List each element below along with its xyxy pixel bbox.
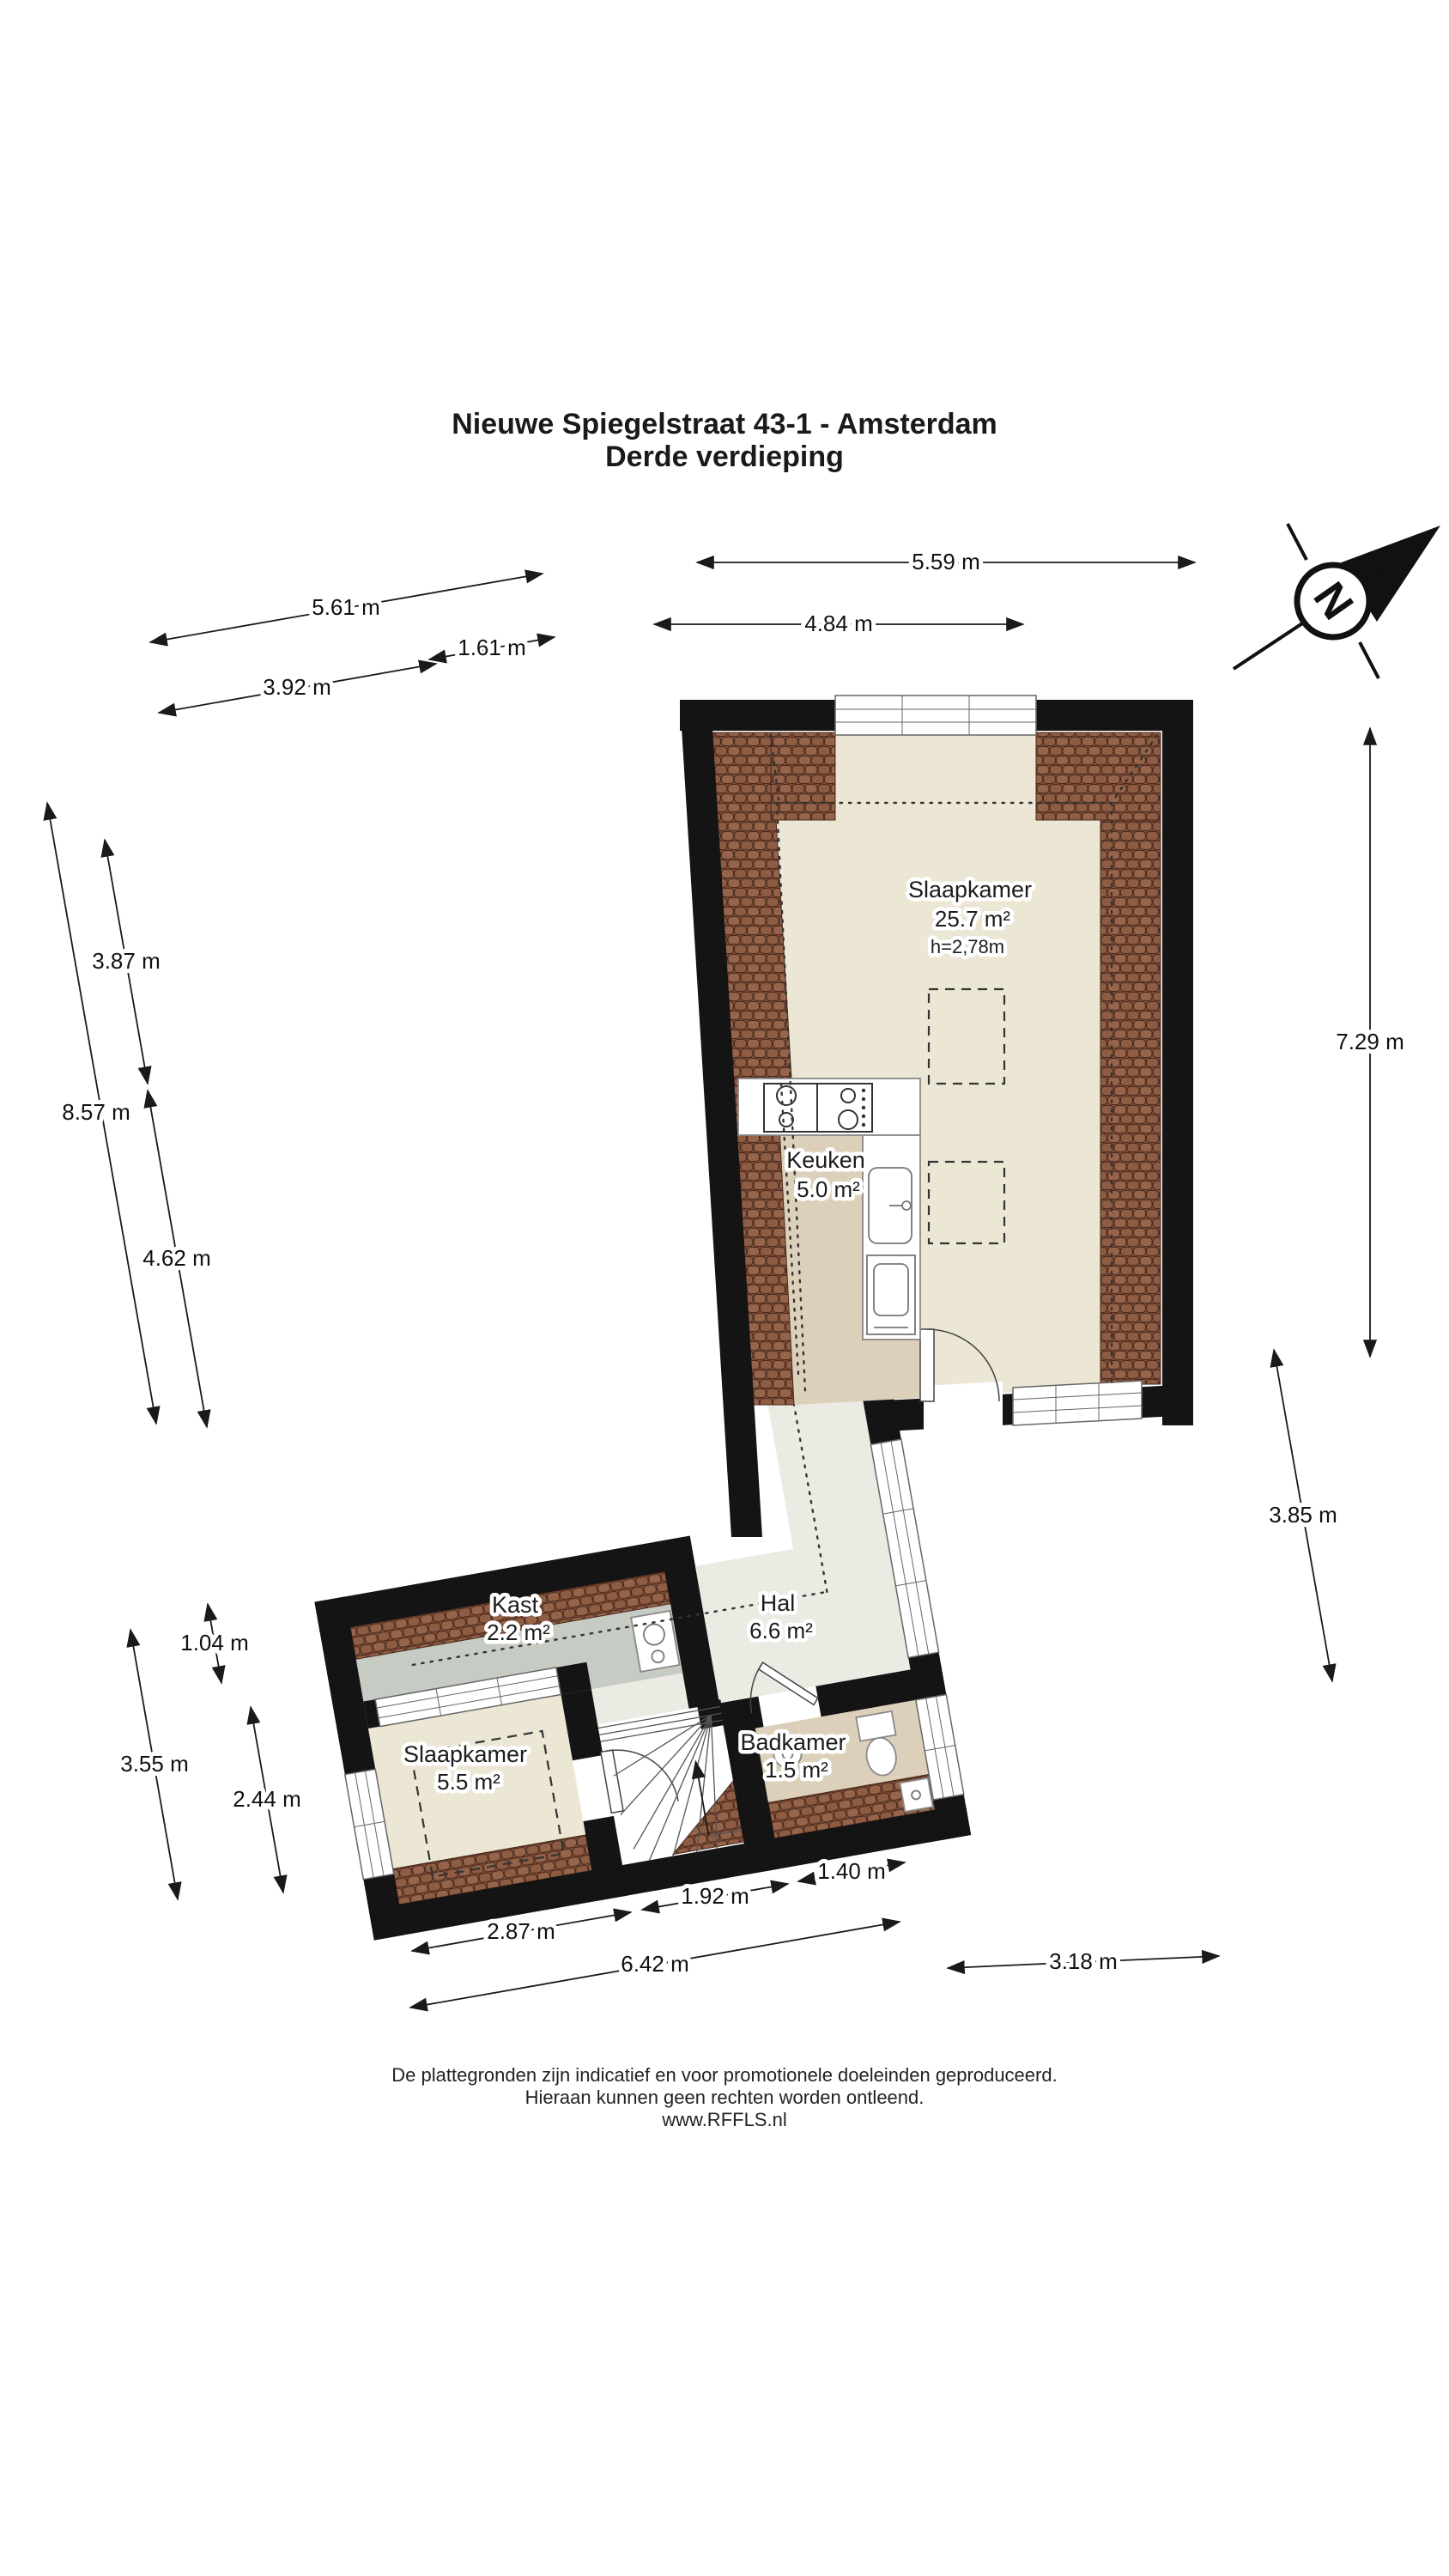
svg-text:3.92 m: 3.92 m [263,674,331,700]
dim-7-29: 7.29 m [1336,728,1404,1357]
dim-1-04: 1.04 m [180,1604,249,1683]
svg-text:5.59 m: 5.59 m [912,549,980,574]
dim-3-85: 3.85 m [1269,1350,1337,1681]
label-kast-area: 2.2 m² [487,1619,550,1645]
svg-text:1.40 m: 1.40 m [817,1858,886,1884]
dim-8-57: 8.57 m [47,803,156,1424]
svg-text:5.61 m: 5.61 m [312,594,380,620]
svg-text:4.62 m: 4.62 m [142,1245,211,1271]
svg-text:3.85 m: 3.85 m [1269,1502,1337,1528]
svg-text:1.92 m: 1.92 m [681,1883,749,1909]
washbasin [900,1778,932,1812]
dim-1-61: 1.61 m [429,635,555,660]
label-keuken: Keuken [786,1147,865,1173]
compass-north-icon: N [1234,524,1440,678]
kitchen-sink-unit [863,1135,920,1340]
dim-3-18: 3.18 m [948,1948,1219,1974]
floorplan-svg: Nieuwe Spiegelstraat 43-1 - Amsterdam De… [0,0,1449,2576]
dim-6-42: 6.42 m [410,1922,900,2008]
disclaimer-footer: De plattegronden zijn indicatief en voor… [391,2064,1057,2130]
floorplan-page: Nieuwe Spiegelstraat 43-1 - Amsterdam De… [0,0,1449,2576]
label-hal: Hal [761,1590,796,1616]
label-slaapkamer-groot-area: 25.7 m² [935,906,1010,932]
svg-text:3.18 m: 3.18 m [1049,1948,1118,1974]
slaapkamer-groot-top-window [835,696,1036,735]
slaapkamer-groot-bottom-window [1013,1381,1142,1425]
label-slaapkamer-groot-height: h=2,78m [931,936,1004,957]
upper-section [680,696,1193,1537]
dim-4-62: 4.62 m [142,1091,211,1427]
svg-text:3.87 m: 3.87 m [92,948,161,974]
dim-5-59: 5.59 m [697,549,1195,574]
svg-text:3.55 m: 3.55 m [120,1751,189,1777]
svg-text:1.61 m: 1.61 m [458,635,526,660]
svg-text:1.04 m: 1.04 m [180,1630,249,1656]
label-keuken-area: 5.0 m² [797,1176,860,1202]
label-slaapkamer-klein-area: 5.5 m² [437,1769,500,1795]
svg-text:4.84 m: 4.84 m [804,611,873,636]
label-slaapkamer-groot: Slaapkamer [908,877,1032,902]
svg-text:7.29 m: 7.29 m [1336,1029,1404,1054]
footer-line-2: Hieraan kunnen geen rechten worden ontle… [525,2087,925,2108]
dim-3-92: 3.92 m [159,664,436,713]
plan-title: Nieuwe Spiegelstraat 43-1 - Amsterdam [452,408,997,440]
svg-text:8.57 m: 8.57 m [62,1099,130,1125]
dim-3-87: 3.87 m [92,840,161,1084]
footer-line-3: www.RFFLS.nl [661,2109,786,2130]
label-slaapkamer-klein: Slaapkamer [403,1741,527,1767]
wing-section [291,1364,971,1940]
label-badkamer: Badkamer [740,1729,846,1755]
label-hal-area: 6.6 m² [749,1618,813,1643]
label-kast: Kast [492,1592,539,1618]
svg-text:6.42 m: 6.42 m [621,1951,689,1977]
svg-text:2.44 m: 2.44 m [233,1786,301,1812]
dim-4-84: 4.84 m [654,611,1023,636]
footer-line-1: De plattegronden zijn indicatief en voor… [391,2064,1057,2086]
plan-subtitle: Derde verdieping [605,440,844,473]
dim-2-44: 2.44 m [233,1707,301,1893]
kitchen-counter [738,1078,920,1135]
dim-5-61: 5.61 m [150,574,543,642]
dim-3-55: 3.55 m [120,1630,189,1899]
svg-text:2.87 m: 2.87 m [487,1918,555,1944]
label-badkamer-area: 1.5 m² [765,1757,828,1783]
